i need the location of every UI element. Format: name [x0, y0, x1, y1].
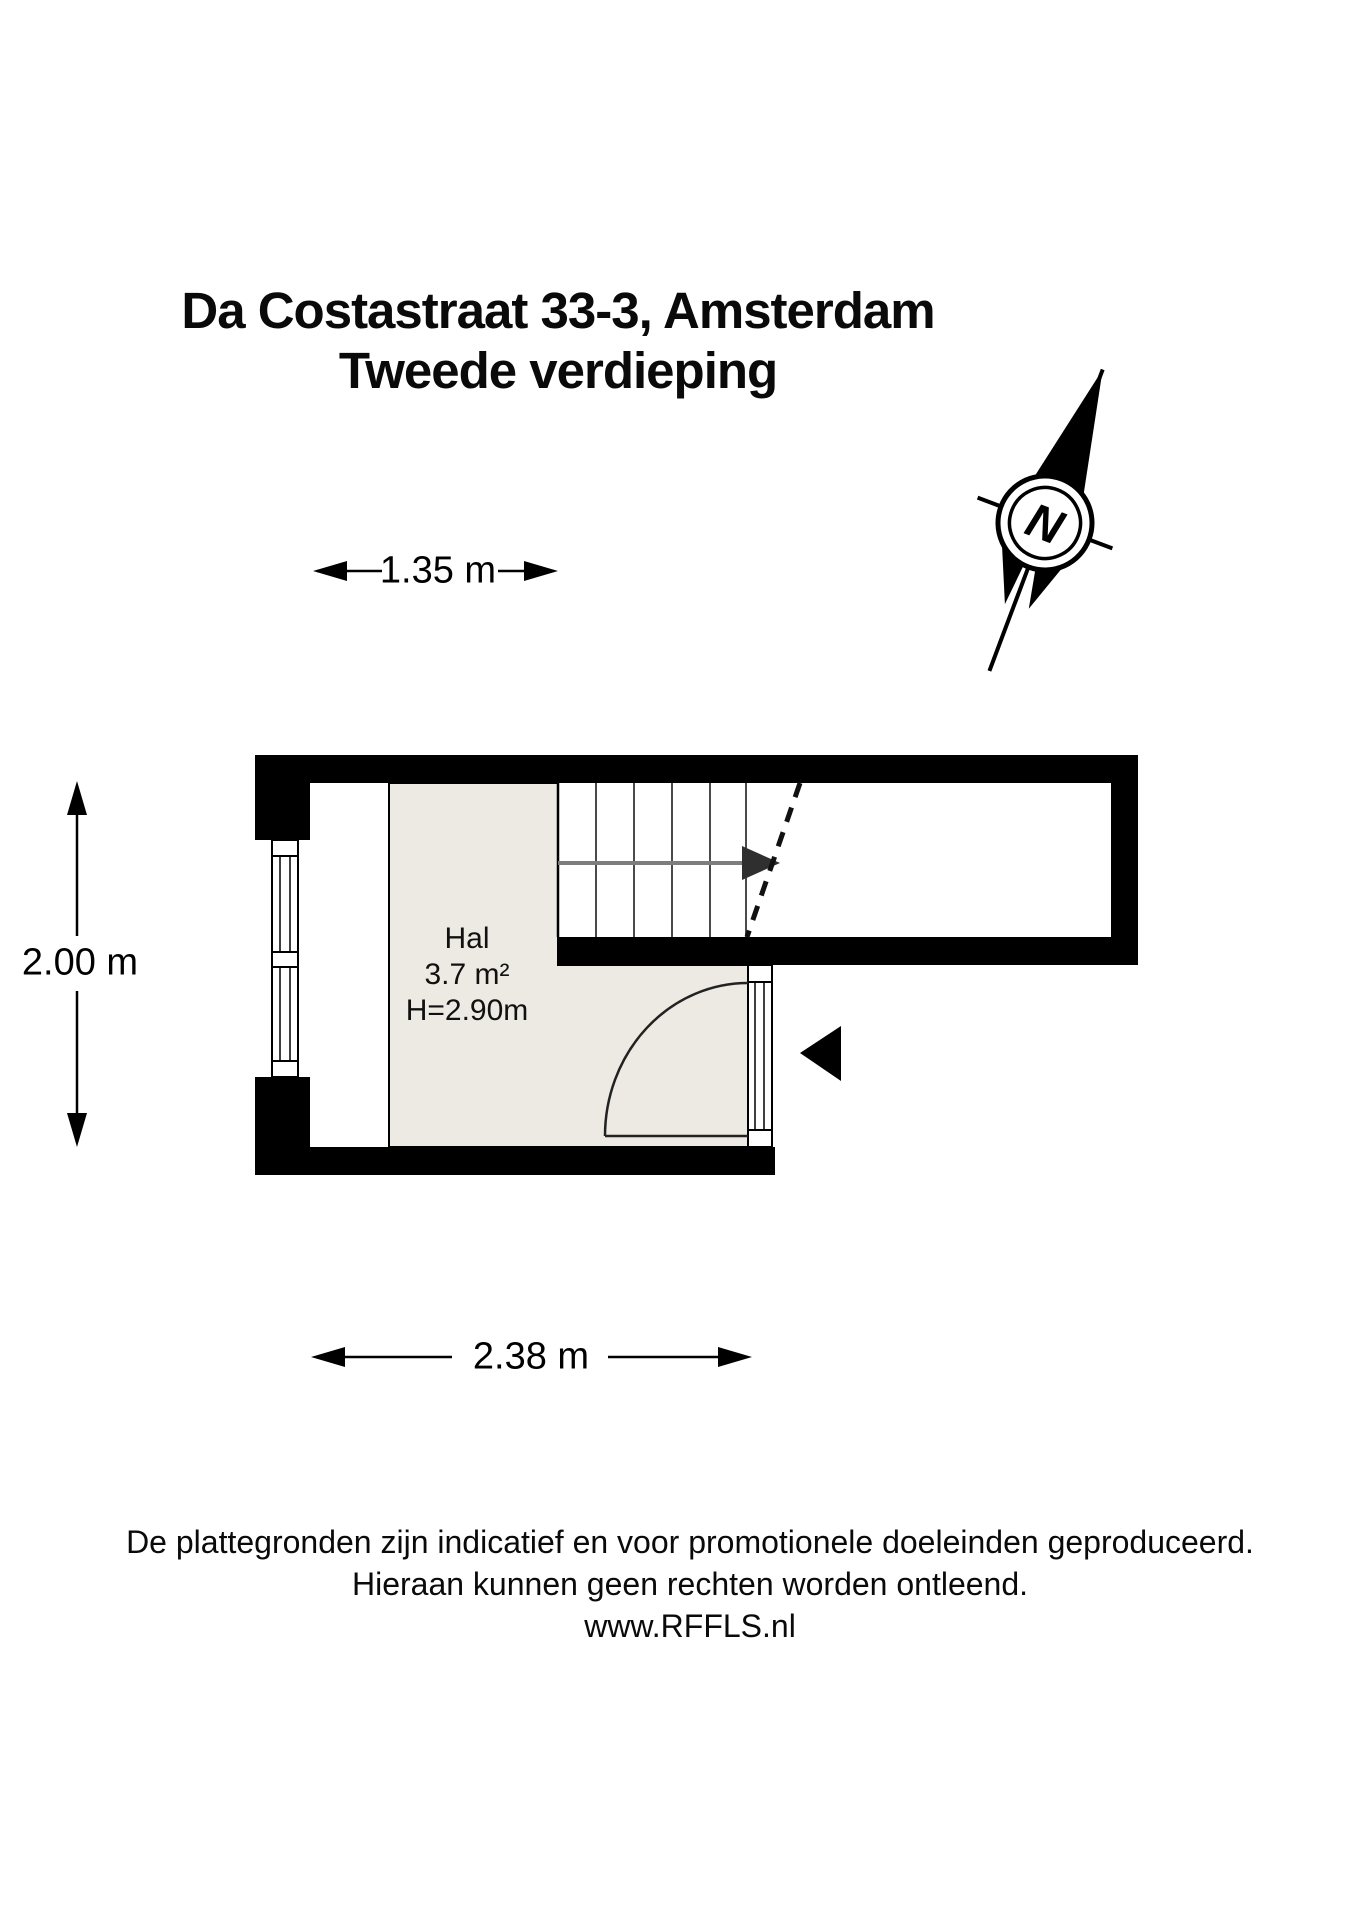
- wall-left-top-column: [255, 755, 310, 840]
- footer-disclaimer: De plattegronden zijn indicatief en voor…: [30, 1521, 1350, 1647]
- window-left: [272, 840, 298, 1077]
- footer-line-1: De plattegronden zijn indicatief en voor…: [30, 1521, 1350, 1563]
- floorplan-page: Da Costastraat 33-3, Amsterdam Tweede ve…: [0, 0, 1358, 1920]
- entrance-door: [748, 965, 772, 1147]
- compass-rose: N: [922, 344, 1170, 696]
- entrance-arrow-icon: [800, 1026, 841, 1081]
- dimension-left-label: 2.00 m: [22, 942, 138, 985]
- dimension-bottom-label: 2.38 m: [473, 1336, 589, 1379]
- wall-top: [255, 755, 1138, 783]
- room-height: H=2.90m: [406, 993, 529, 1029]
- dimension-top-label: 1.35 m: [380, 550, 496, 593]
- stairs: [558, 783, 800, 937]
- wall-right: [1111, 755, 1138, 965]
- room-name: Hal: [406, 921, 529, 957]
- room-label: Hal 3.7 m² H=2.90m: [406, 921, 529, 1029]
- footer-line-2: Hieraan kunnen geen rechten worden ontle…: [30, 1563, 1350, 1605]
- wall-stairwell-bottom: [558, 937, 1138, 965]
- room-area: 3.7 m²: [406, 957, 529, 993]
- wall-bottom: [255, 1147, 775, 1175]
- footer-line-3: www.RFFLS.nl: [30, 1605, 1350, 1647]
